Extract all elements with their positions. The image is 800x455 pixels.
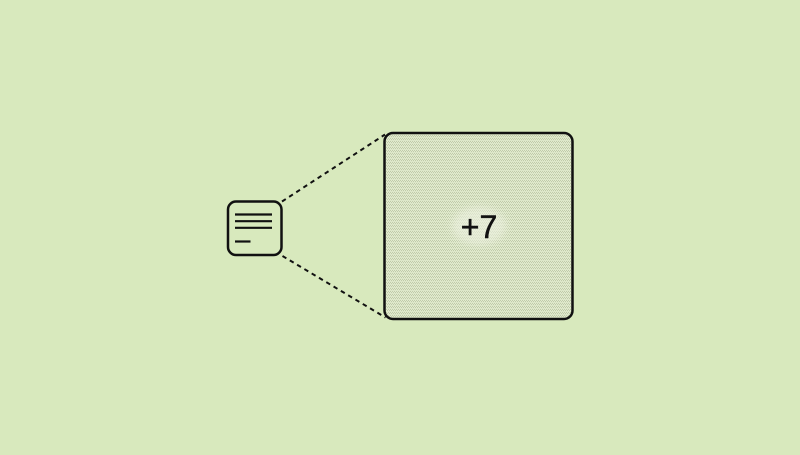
svg-text:+7: +7 — [461, 209, 497, 245]
